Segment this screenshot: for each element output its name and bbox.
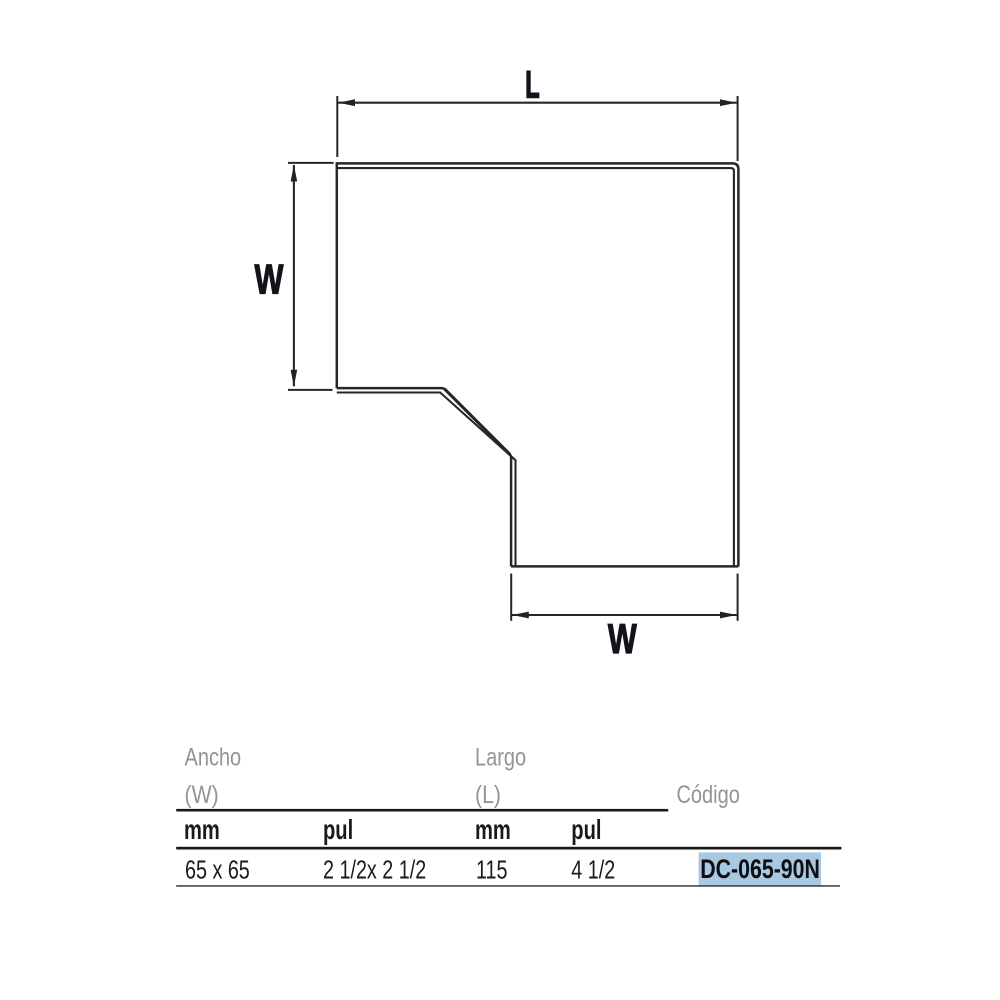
svg-text:115: 115 (476, 855, 507, 884)
svg-text:DC-065-90N: DC-065-90N (700, 855, 820, 885)
svg-text:mm: mm (184, 815, 220, 846)
svg-text:pul: pul (571, 815, 601, 846)
svg-text:4 1/2: 4 1/2 (571, 855, 615, 884)
svg-text:mm: mm (475, 815, 511, 846)
svg-text:Largo: Largo (475, 743, 526, 771)
svg-text:(L): (L) (475, 780, 501, 808)
svg-text:2 1/2x 2 1/2: 2 1/2x 2 1/2 (323, 855, 426, 884)
svg-text:65 x 65: 65 x 65 (185, 855, 250, 884)
svg-text:Código: Código (677, 781, 740, 809)
svg-text:W: W (608, 615, 637, 662)
svg-text:Ancho: Ancho (185, 743, 242, 771)
svg-text:pul: pul (323, 815, 353, 846)
svg-text:(W): (W) (185, 780, 219, 808)
svg-text:W: W (255, 256, 284, 303)
svg-text:L: L (525, 63, 539, 106)
